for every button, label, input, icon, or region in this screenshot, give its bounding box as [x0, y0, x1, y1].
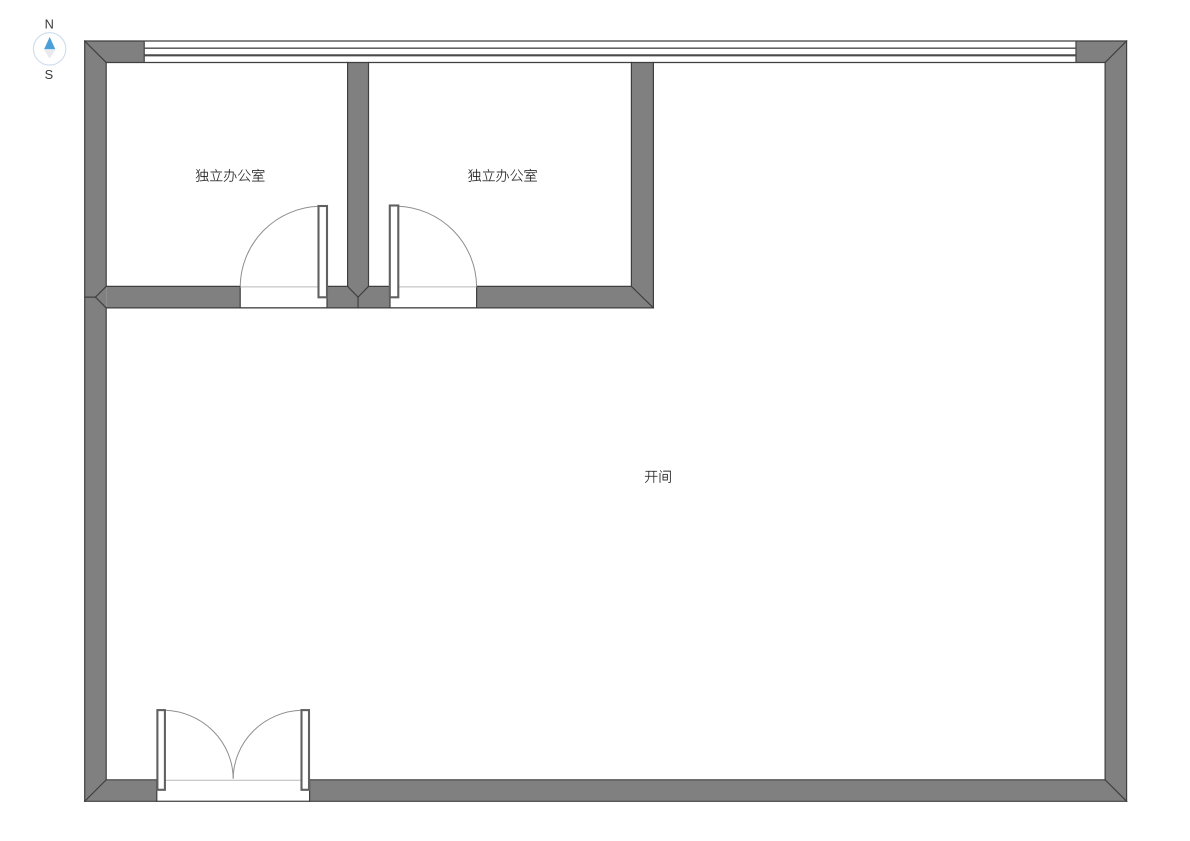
svg-text:N: N: [45, 17, 54, 32]
svg-text:S: S: [45, 67, 54, 82]
